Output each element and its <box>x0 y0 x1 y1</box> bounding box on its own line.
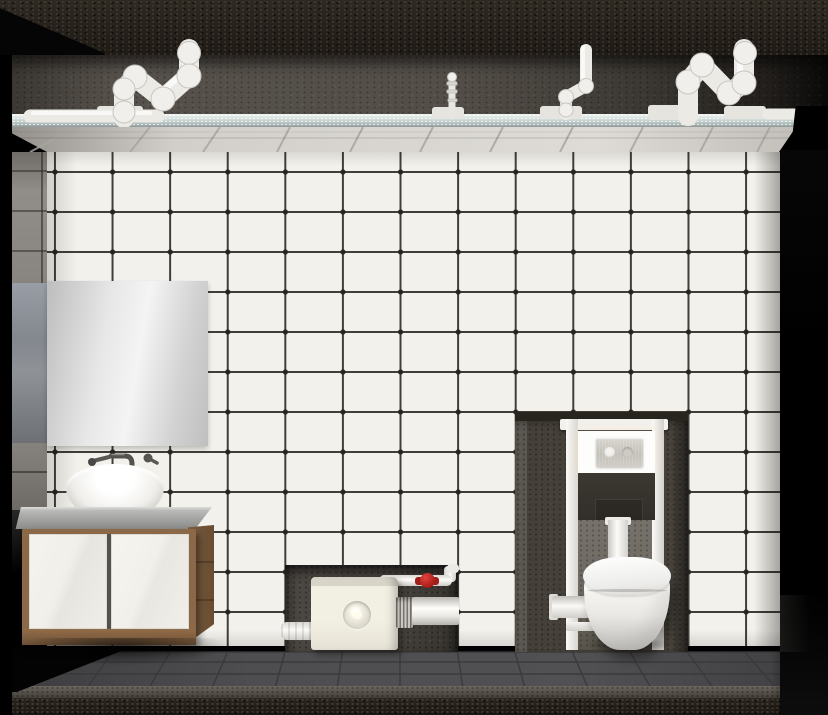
concrete-slab <box>0 0 828 58</box>
bathroom-render-scene: OLI <box>0 0 828 715</box>
cabinet-bottom-rail <box>22 629 196 645</box>
pump-top-pipe-upper <box>447 564 459 573</box>
pump-cap-center-dot <box>354 612 361 619</box>
left-side-wall-tiles-top <box>12 152 47 283</box>
right-side-wall <box>780 150 828 715</box>
left-side-wall-mirror-reflection <box>12 283 47 443</box>
vanity-cabinet <box>22 529 196 645</box>
mirror <box>47 281 208 446</box>
flush-button-right <box>622 447 633 458</box>
flush-button-left <box>604 447 615 458</box>
vanity-countertop <box>14 507 212 529</box>
gravel-band <box>0 698 828 715</box>
pump-discharge-pipe <box>412 597 459 625</box>
suspended-ceiling-edge <box>0 114 796 127</box>
cabinet-door-right <box>111 534 189 629</box>
toilet-seat-seam <box>587 589 667 592</box>
concrete-back-wall <box>0 55 828 120</box>
corrugated-coupling <box>396 597 413 628</box>
cabinet-door-left <box>29 534 107 629</box>
left-edge-column <box>0 55 12 715</box>
left-side-wall-tiles-bottom <box>12 443 47 510</box>
shutoff-valve-red-handle <box>420 573 435 588</box>
ceiling-corner-black-right <box>790 106 828 156</box>
